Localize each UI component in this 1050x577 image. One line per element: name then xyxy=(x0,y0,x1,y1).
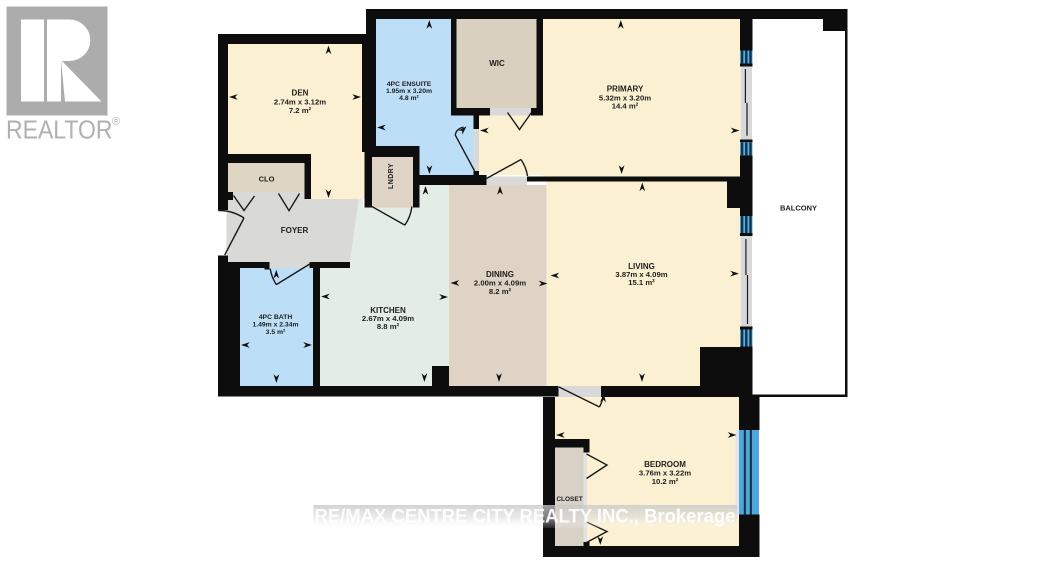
svg-text:4.8 m²: 4.8 m² xyxy=(399,95,419,102)
svg-text:8.2 m²: 8.2 m² xyxy=(489,287,512,296)
svg-text:CLO: CLO xyxy=(259,175,275,184)
svg-text:PRIMARY: PRIMARY xyxy=(607,85,644,94)
svg-text:LNDRY: LNDRY xyxy=(388,163,395,189)
svg-text:BALCONY: BALCONY xyxy=(780,204,817,213)
svg-text:4PC BATH: 4PC BATH xyxy=(259,314,293,321)
svg-text:7.2 m²: 7.2 m² xyxy=(289,106,312,115)
svg-text:DEN: DEN xyxy=(292,89,309,98)
svg-text:WIC: WIC xyxy=(489,59,505,68)
svg-text:10.2 m²: 10.2 m² xyxy=(652,477,679,486)
svg-text:8.8 m²: 8.8 m² xyxy=(377,322,400,331)
svg-text:3.5 m²: 3.5 m² xyxy=(266,329,286,336)
svg-text:14.4 m²: 14.4 m² xyxy=(612,102,639,111)
svg-text:CLOSET: CLOSET xyxy=(556,496,582,503)
svg-text:4PC ENSUITE: 4PC ENSUITE xyxy=(387,81,432,88)
svg-text:1.95m x 3.20m: 1.95m x 3.20m xyxy=(386,88,432,95)
svg-text:15.1 m²: 15.1 m² xyxy=(628,278,655,287)
svg-text:FOYER: FOYER xyxy=(281,226,309,235)
svg-text:REALTOR: REALTOR xyxy=(6,115,113,145)
svg-text:1.49m x 2.34m: 1.49m x 2.34m xyxy=(252,322,298,329)
svg-text:RE/MAX CENTRE CITY REALTY INC.: RE/MAX CENTRE CITY REALTY INC., Brokerag… xyxy=(315,506,736,528)
svg-text:®: ® xyxy=(112,116,120,128)
